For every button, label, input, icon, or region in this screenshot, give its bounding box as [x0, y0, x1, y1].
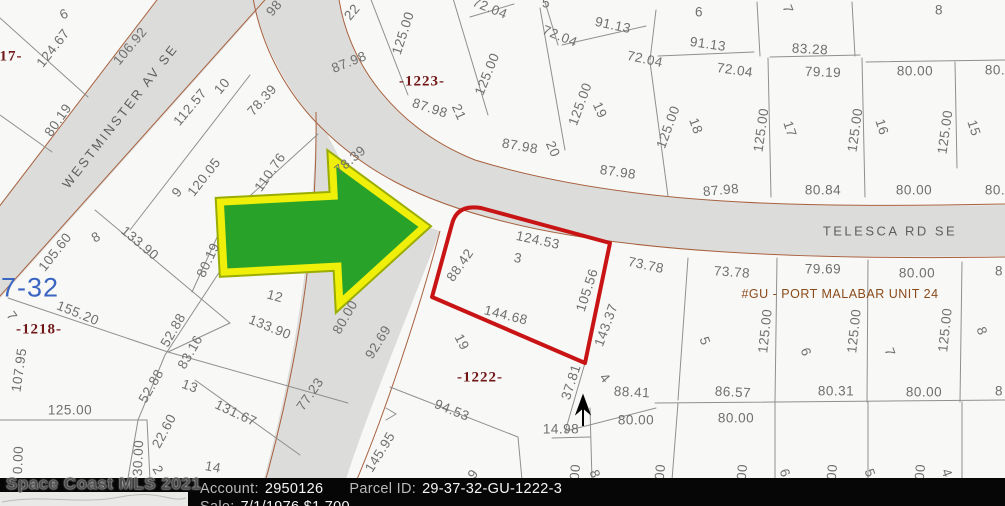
dimension-label: 72.04	[470, 0, 509, 22]
dimension-label: 125.00	[472, 51, 503, 98]
lot-number-label: 10	[211, 75, 233, 97]
footer-sale-row: Sale:7/1/1976 $1,700	[200, 499, 376, 506]
footer-account-row: Account:2950126Parcel ID:29-37-32-GU-122…	[200, 481, 588, 497]
dimension-label: 80.00	[897, 64, 933, 79]
parcel-id-label: Parcel ID:	[349, 481, 416, 497]
lot-number-label: 9	[169, 184, 186, 200]
dimension-label: 77.23	[293, 375, 326, 413]
dimension-label: 125.00	[565, 81, 594, 128]
dimension-label: 88.42	[443, 246, 476, 284]
lot-number-label: 6	[57, 6, 71, 23]
dimension-label: 125.00	[934, 109, 955, 155]
dimension-label: 80.00	[896, 183, 932, 198]
map-sheet-label: 7-32	[1, 273, 59, 304]
dimension-label: 120.05	[184, 155, 223, 199]
dimension-label: 86.57	[714, 384, 751, 401]
dimension-label: 110.76	[251, 150, 288, 194]
lot-number-label: 18	[686, 116, 706, 136]
dimension-label: 80.19	[194, 240, 223, 279]
dimension-label: 124.53	[515, 228, 561, 252]
dimension-label: 14.98	[543, 422, 579, 437]
lot-number-label: 21	[449, 102, 469, 123]
dimension-label: 125.00	[755, 308, 775, 354]
dimension-label: 8	[995, 264, 1003, 279]
lot-number-label: 19	[452, 331, 473, 352]
lot-number-label: 15	[964, 118, 983, 138]
dimension-label: 124.67	[33, 26, 72, 70]
lot-number-label: 8	[974, 325, 991, 338]
lot-number-label: 5	[542, 0, 550, 11]
parcel-map-view: 6124.67106.9280.1917-98WESTMINSTER AV SE…	[0, 0, 1005, 506]
dimension-label: 80.00	[899, 266, 935, 281]
dimension-label: 107.95	[8, 347, 29, 393]
lot-number-label: 20	[543, 139, 563, 160]
dimension-label: 30.00	[130, 440, 146, 477]
lot-number-label: 8	[89, 229, 103, 246]
lot-number-label: 16	[872, 117, 891, 137]
dimension-label: 98	[263, 0, 285, 19]
dimension-label: 125.00	[653, 104, 682, 151]
dimension-label: 87.98	[599, 162, 637, 182]
lot-number-label: 13	[180, 376, 200, 396]
dimension-label: 80.00	[329, 298, 360, 337]
dimension-label: 83.16	[174, 333, 205, 372]
dimension-label: 88.41	[613, 384, 650, 401]
dimension-label: 106.92	[110, 24, 150, 68]
dimension-label: 144.68	[483, 302, 530, 327]
dimension-label: 125.00	[750, 107, 771, 153]
dimension-label: 143.37	[591, 302, 620, 349]
dimension-label: 125.00	[844, 107, 865, 153]
dimension-label: 105.56	[573, 267, 601, 314]
dimension-label: 72.04	[626, 48, 665, 70]
dimension-label: 131.67	[213, 397, 259, 429]
dimension-label: 72.04	[716, 60, 754, 80]
sale-value: 7/1/1976 $1,700	[241, 499, 350, 506]
map-labels: 6124.67106.9280.1917-98WESTMINSTER AV SE…	[0, 0, 1005, 506]
dimension-label: 125.00	[389, 10, 417, 57]
dimension-label: 87.98	[501, 135, 539, 156]
block-number-label: -1218-	[16, 322, 62, 339]
dimension-label: 78.39	[244, 81, 279, 118]
lot-number-label: 19	[590, 100, 610, 121]
dimension-label: 87.98	[329, 48, 368, 76]
watermark-text: Space Coast MLS 2021	[6, 474, 201, 494]
lot-number-label: 8	[935, 3, 943, 18]
dimension-label: 105.60	[35, 230, 74, 274]
lot-number-label: 12	[265, 287, 284, 306]
dimension-label: 37.81	[558, 362, 583, 401]
dimension-label: 73.78	[713, 263, 750, 280]
account-label: Account:	[200, 481, 259, 497]
dimension-label: 22.60	[149, 411, 179, 450]
sale-label: Sale:	[200, 499, 235, 506]
dimension-label: 73.78	[627, 254, 666, 276]
lot-number-label: 6	[798, 346, 815, 359]
block-number-label: -1223-	[399, 74, 445, 91]
lot-number-label: 7	[780, 3, 797, 16]
lot-number-label: 17	[780, 119, 799, 139]
dimension-label: 83.28	[791, 41, 828, 58]
lot-number-label: 4	[597, 370, 614, 386]
street-name-label: TELESCA RD SE	[823, 224, 957, 239]
dimension-label: 80.00	[718, 411, 754, 426]
dimension-label: 125.00	[935, 307, 955, 353]
dimension-label: 91.13	[689, 34, 727, 54]
dimension-label: 133.90	[247, 312, 294, 343]
dimension-label: 80.19	[41, 101, 74, 139]
dimension-label: 0.00	[10, 446, 26, 475]
dimension-label: 92.69	[362, 323, 394, 362]
parcel-id-value: 29-37-32-GU-1222-3	[422, 481, 562, 497]
dimension-label: 125.00	[48, 403, 92, 418]
footer-corner-sketch	[0, 492, 188, 506]
dimension-label: 94.53	[432, 396, 471, 424]
dimension-label: 80.00	[618, 413, 654, 428]
dimension-label: 145.95	[362, 429, 398, 475]
dimension-label: 112.57	[170, 86, 209, 129]
dimension-label: 80.84	[805, 183, 841, 198]
lot-number-label: 22	[341, 1, 363, 23]
dimension-label: 52.88	[135, 367, 166, 406]
dimension-label: 52.88	[157, 311, 188, 350]
subdivision-label: #GU - PORT MALABAR UNIT 24	[741, 287, 938, 301]
dimension-label: 80.31	[818, 384, 854, 399]
lot-number-label: 5	[697, 335, 714, 348]
lot-number-label: 7	[882, 346, 899, 359]
account-value: 2950126	[265, 481, 324, 497]
dimension-label: 87.98	[702, 181, 739, 199]
dimension-label: 72.04	[540, 22, 579, 50]
dimension-label: 79.19	[805, 64, 842, 80]
dimension-label: 80.	[985, 183, 1005, 198]
dimension-label: 133.90	[118, 223, 162, 263]
dimension-label: 8	[995, 384, 1003, 399]
dimension-label: 78.39	[331, 143, 368, 178]
lot-number-label: 6	[695, 5, 703, 20]
dimension-label: 125.00	[844, 308, 864, 354]
dimension-label: 80.	[985, 63, 1005, 78]
lot-number-label: 3	[513, 250, 523, 266]
block-number-label: -1222-	[457, 370, 503, 387]
block-number-label: 17-	[0, 49, 23, 66]
dimension-label: 80.00	[906, 385, 942, 400]
lot-number-label: 14	[204, 458, 222, 476]
dimension-label: 87.98	[410, 95, 449, 120]
dimension-label: 79.69	[805, 262, 841, 277]
dimension-label: 91.13	[594, 14, 633, 36]
